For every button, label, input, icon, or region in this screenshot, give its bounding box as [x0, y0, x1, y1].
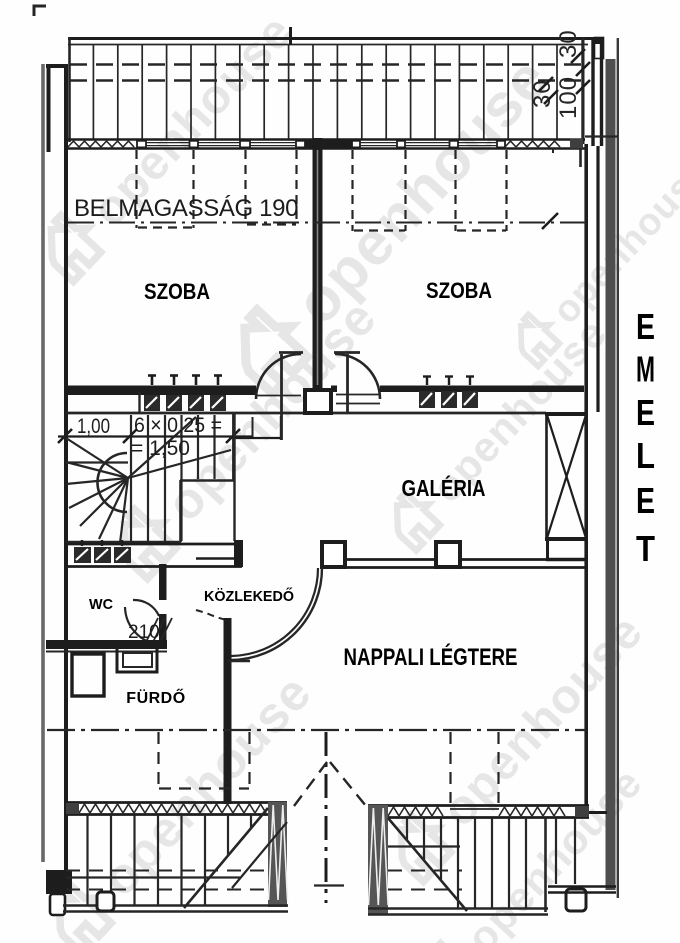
svg-text:T: T — [636, 528, 655, 569]
svg-text:6 × 0,25 =: 6 × 0,25 = — [134, 414, 222, 437]
svg-text:E: E — [636, 306, 655, 347]
svg-text:L: L — [636, 435, 655, 476]
svg-text:1,00: 1,00 — [77, 415, 110, 438]
svg-text:100: 100 — [555, 76, 582, 119]
svg-text:FÜRDŐ: FÜRDŐ — [126, 688, 185, 707]
svg-text:SZOBA: SZOBA — [144, 279, 210, 304]
svg-text:GALÉRIA: GALÉRIA — [402, 474, 486, 501]
svg-text:KÖZLEKEDŐ: KÖZLEKEDŐ — [204, 587, 294, 605]
svg-text:WC: WC — [89, 596, 113, 613]
svg-text:E: E — [636, 392, 655, 433]
svg-text:30: 30 — [555, 29, 582, 58]
svg-text:210: 210 — [128, 622, 160, 643]
svg-text:E: E — [636, 480, 655, 521]
svg-text:= 1,50: = 1,50 — [131, 437, 190, 460]
svg-text:BELMAGASSÁG 190: BELMAGASSÁG 190 — [74, 195, 299, 222]
svg-text:M: M — [636, 349, 655, 390]
svg-text:NAPPALI LÉGTERE: NAPPALI LÉGTERE — [344, 643, 518, 671]
svg-text:30: 30 — [529, 79, 556, 108]
svg-text:SZOBA: SZOBA — [426, 278, 492, 303]
svg-text:openhouse: openhouse — [282, 43, 562, 336]
